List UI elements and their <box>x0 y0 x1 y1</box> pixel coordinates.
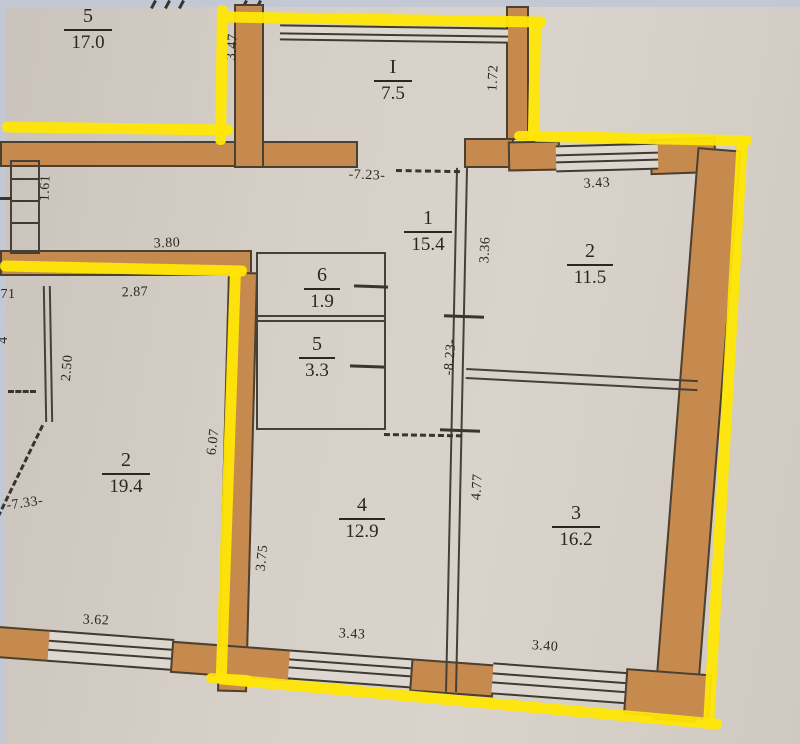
room-area: 11.5 <box>567 268 613 287</box>
window-line <box>48 649 173 660</box>
fraction-bar <box>102 473 150 475</box>
room-area: 1.9 <box>304 292 340 311</box>
fraction-bar <box>404 231 452 233</box>
shaft <box>10 160 40 254</box>
wall-top-right-a <box>508 141 561 172</box>
room-number: 5 <box>64 6 112 26</box>
dim-71-partial: 71 <box>1 287 16 303</box>
dashed-opening-top <box>396 169 460 173</box>
highlight-loggia-right-vertical <box>528 20 542 140</box>
dim-7-23: -7.23- <box>348 167 385 184</box>
room-label-neighbor-left: 2 19.4 <box>102 450 150 496</box>
photo-edge-top <box>0 0 800 7</box>
dim-2-50: 2.50 <box>59 354 77 382</box>
door-tick <box>440 428 480 432</box>
wall-loggia-bottom-right <box>464 138 514 168</box>
dim-3-43-top: 3.43 <box>583 175 610 192</box>
wall-loggia-bottom-left <box>262 141 358 168</box>
room-number: 1 <box>404 208 452 228</box>
partition-storage-divider <box>258 315 384 322</box>
dim-4-77: 4.77 <box>469 473 487 501</box>
fraction-bar <box>64 29 112 31</box>
dashed-stub <box>8 390 36 393</box>
dim-8-23: -8.23- <box>441 338 460 376</box>
room-label-room-2-right: 2 11.5 <box>567 241 613 287</box>
room-number: 5 <box>299 334 335 354</box>
room-number: 3 <box>552 503 600 523</box>
dim-3-43-bottom: 3.43 <box>338 626 365 643</box>
room-number: I <box>374 57 412 77</box>
dim-3-80: 3.80 <box>153 236 180 253</box>
dim-6-07: 6.07 <box>204 428 223 456</box>
room-label-loggia: I 7.5 <box>374 57 412 103</box>
dim-2-87: 2.87 <box>121 285 148 302</box>
partition-room2-room3 <box>466 368 698 391</box>
fraction-bar <box>567 264 613 266</box>
room-area: 7.5 <box>374 84 412 103</box>
fraction-bar <box>552 526 600 528</box>
room-label-room-4: 4 12.9 <box>339 495 385 541</box>
highlight-left-vertical-upper <box>215 5 228 145</box>
window-line <box>280 32 508 37</box>
highlight-top-left-horizontal <box>2 121 233 135</box>
room-number: 2 <box>567 241 613 261</box>
window-line <box>556 152 658 157</box>
fraction-bar <box>339 518 385 520</box>
shaft-rung <box>12 200 38 202</box>
shaft-rung <box>12 178 38 180</box>
room-area: 19.4 <box>102 477 150 496</box>
dim-1-72: 1.72 <box>485 64 502 91</box>
room-area: 16.2 <box>552 530 600 549</box>
fraction-bar <box>304 288 340 290</box>
window-3-43-top <box>556 143 659 173</box>
dim-3-75: 3.75 <box>254 544 273 572</box>
dim-3-62: 3.62 <box>82 613 109 630</box>
highlight-top-right-horizontal <box>532 131 752 147</box>
window-line <box>556 159 658 164</box>
room-area: 12.9 <box>339 522 385 541</box>
window-3-62 <box>47 630 174 671</box>
dim-3-36: 3.36 <box>477 236 494 263</box>
room-label-room-3: 3 16.2 <box>552 503 600 549</box>
wall-loggia-left-column <box>234 4 264 168</box>
dim-3-40: 3.40 <box>531 638 559 656</box>
room-area: 17.0 <box>64 33 112 52</box>
fraction-bar <box>299 357 335 359</box>
partition-neighbor-left <box>43 286 53 422</box>
dashed-hall-bottom <box>384 433 462 437</box>
dim-7-33: -7.33- <box>6 494 45 515</box>
fraction-bar <box>374 80 412 82</box>
room-number: 2 <box>102 450 150 470</box>
room-number: 6 <box>304 265 340 285</box>
window-loggia-top <box>280 24 508 43</box>
room-area: 15.4 <box>404 235 452 254</box>
window-line <box>492 681 627 693</box>
dim-4-partial: 4 <box>0 336 12 344</box>
highlight-stub-bottom <box>206 673 252 685</box>
room-number: 4 <box>339 495 385 515</box>
room-label-storage-6: 6 1.9 <box>304 265 340 311</box>
room-label-hallway: 1 15.4 <box>404 208 452 254</box>
door-tick <box>444 314 484 318</box>
dim-1-61: 1.61 <box>38 174 55 201</box>
room-label-storage-5: 5 3.3 <box>299 334 335 380</box>
wall-pier <box>0 626 52 662</box>
wall-tick <box>0 197 12 200</box>
window-3-40 <box>491 662 628 704</box>
floorplan-photo: 5 17.0 I 7.5 1 15.4 2 11.5 6 1.9 5 3.3 2… <box>0 0 800 744</box>
shaft-rung <box>12 222 38 224</box>
room-area: 3.3 <box>299 361 335 380</box>
room-label-neighbor-top-left: 5 17.0 <box>64 6 112 52</box>
